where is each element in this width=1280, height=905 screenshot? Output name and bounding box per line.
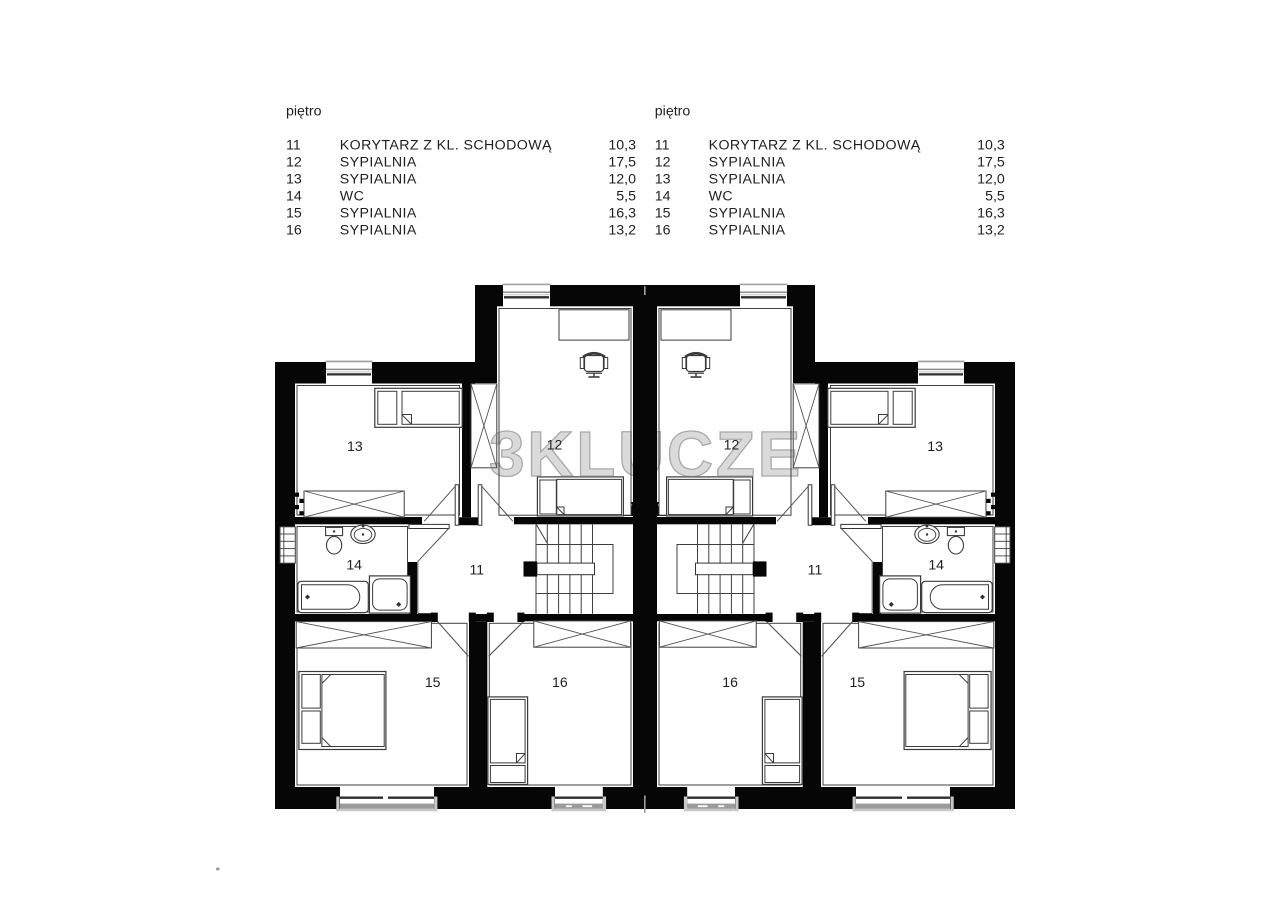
svg-text:16: 16 — [655, 223, 671, 239]
svg-text:SYPIALNIA: SYPIALNIA — [709, 155, 786, 171]
svg-text:12: 12 — [655, 155, 671, 171]
svg-text:15: 15 — [849, 674, 865, 690]
svg-text:SYPIALNIA: SYPIALNIA — [340, 223, 417, 239]
svg-text:14: 14 — [655, 189, 671, 205]
svg-text:SYPIALNIA: SYPIALNIA — [709, 172, 786, 188]
svg-text:piętro: piętro — [655, 103, 691, 119]
svg-text:15: 15 — [286, 206, 302, 222]
svg-text:SYPIALNIA: SYPIALNIA — [340, 206, 417, 222]
svg-text:12: 12 — [286, 155, 302, 171]
svg-text:12,0: 12,0 — [608, 172, 636, 188]
svg-text:11: 11 — [286, 137, 301, 153]
svg-text:14: 14 — [286, 189, 302, 205]
svg-text:WC: WC — [340, 189, 364, 205]
svg-text:SYPIALNIA: SYPIALNIA — [709, 206, 786, 222]
svg-text:5,5: 5,5 — [985, 189, 1005, 205]
svg-text:piętro: piętro — [286, 103, 322, 119]
svg-text:13: 13 — [286, 172, 302, 188]
svg-text:SYPIALNIA: SYPIALNIA — [340, 172, 417, 188]
svg-text:KORYTARZ Z KL. SCHODOWĄ: KORYTARZ Z KL. SCHODOWĄ — [340, 137, 552, 153]
svg-text:14: 14 — [928, 557, 944, 573]
svg-text:13,2: 13,2 — [977, 223, 1005, 239]
svg-text:11: 11 — [655, 137, 670, 153]
svg-text:17,5: 17,5 — [608, 155, 636, 171]
svg-text:SYPIALNIA: SYPIALNIA — [340, 155, 417, 171]
svg-text:13,2: 13,2 — [608, 223, 636, 239]
svg-text:13: 13 — [347, 438, 363, 454]
svg-text:10,3: 10,3 — [608, 137, 636, 153]
svg-text:13: 13 — [655, 172, 671, 188]
svg-text:15: 15 — [655, 206, 671, 222]
svg-text:16,3: 16,3 — [608, 206, 636, 222]
svg-text:12,0: 12,0 — [977, 172, 1005, 188]
svg-text:16: 16 — [286, 223, 302, 239]
svg-text:KORYTARZ Z KL. SCHODOWĄ: KORYTARZ Z KL. SCHODOWĄ — [709, 137, 921, 153]
svg-text:WC: WC — [709, 189, 733, 205]
svg-text:10,3: 10,3 — [977, 137, 1005, 153]
svg-text:5,5: 5,5 — [616, 189, 636, 205]
svg-text:16: 16 — [722, 674, 738, 690]
svg-text:11: 11 — [469, 561, 484, 577]
svg-text:17,5: 17,5 — [977, 155, 1005, 171]
svg-text:11: 11 — [808, 561, 823, 577]
svg-text:15: 15 — [425, 674, 441, 690]
svg-text:16: 16 — [552, 674, 568, 690]
svg-text:SYPIALNIA: SYPIALNIA — [709, 223, 786, 239]
svg-text:14: 14 — [346, 557, 362, 573]
svg-text:16,3: 16,3 — [977, 206, 1005, 222]
svg-text:13: 13 — [927, 438, 943, 454]
svg-text:3KLUCZE: 3KLUCZE — [489, 418, 803, 490]
